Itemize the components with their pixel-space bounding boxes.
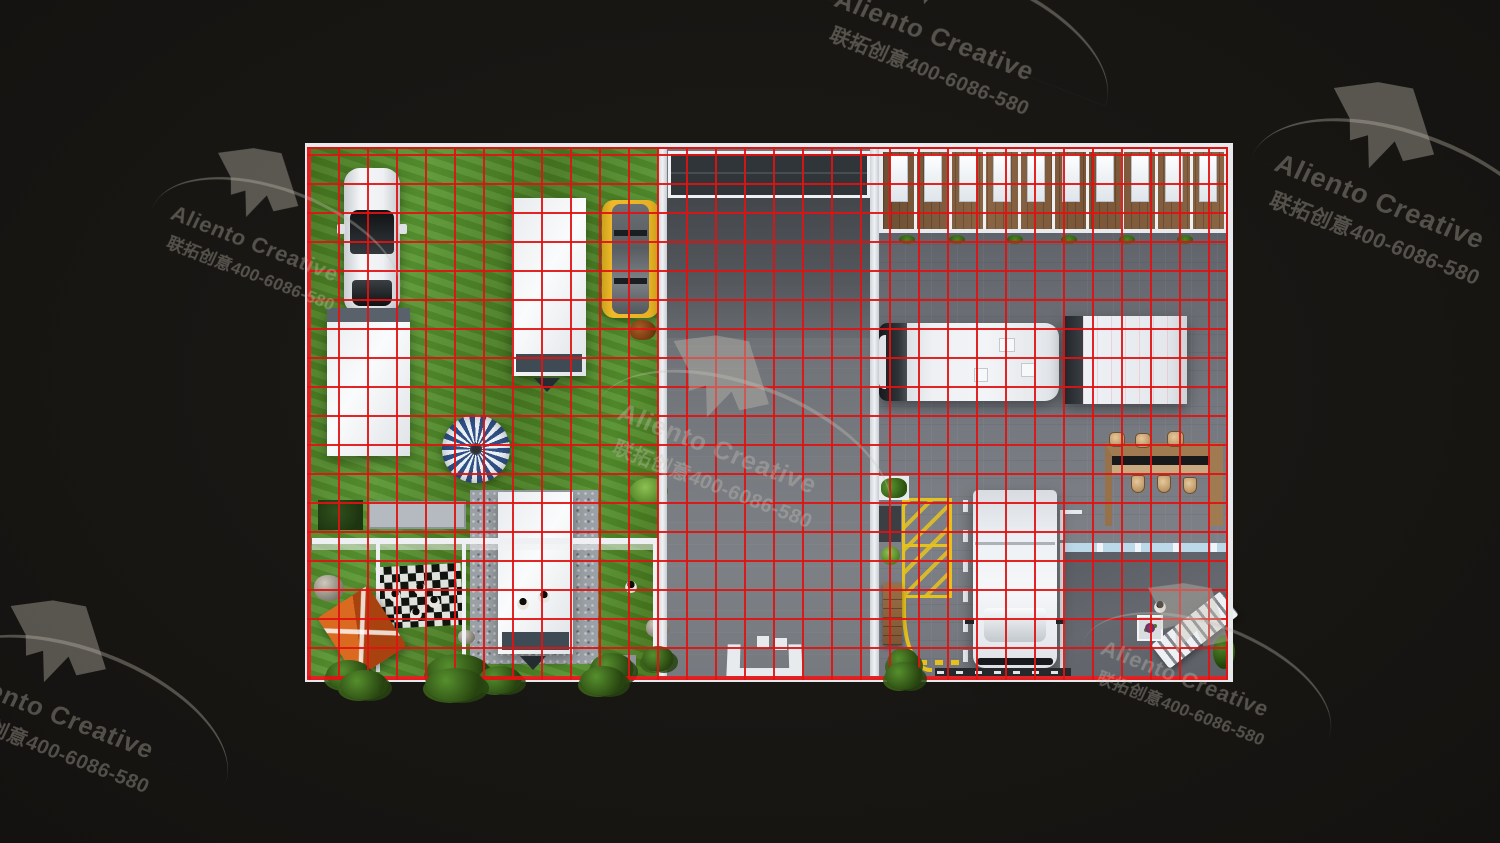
u-shaped-booth (726, 644, 803, 680)
canopy-arrow-icon (534, 378, 560, 392)
person-figure (388, 588, 402, 602)
brand-logo-icon (1306, 55, 1457, 196)
person-figure (516, 596, 530, 610)
car-mirror-icon (337, 224, 345, 234)
stage: Aliento Creative 联拓创意400-6086-580 Alient… (0, 0, 1500, 843)
room-bed (1062, 154, 1080, 202)
plant (1177, 235, 1193, 244)
corner-room (1060, 543, 1228, 677)
canopy-arrow-icon (520, 656, 546, 670)
van-box-seam (975, 542, 1055, 545)
flower-table (1137, 615, 1163, 641)
bar-countertop (1112, 456, 1210, 465)
car-rear-window (352, 280, 392, 306)
dividing-wall (658, 148, 667, 677)
wooden-bench (883, 583, 902, 645)
edge-marker-strip (935, 668, 1071, 678)
garden-section (310, 148, 658, 677)
white-canopy-path (498, 492, 573, 654)
garden-fence (312, 538, 658, 544)
plant (1213, 635, 1235, 669)
swoosh-icon (812, 0, 1133, 106)
bush (580, 666, 626, 696)
dorm-room (1193, 152, 1224, 229)
roof-hatch (974, 368, 988, 382)
yellow-hatched-zone (902, 498, 952, 598)
dark-screen-panel (668, 151, 870, 198)
bush (642, 646, 674, 672)
dividing-wall (870, 148, 879, 677)
room-bed (959, 154, 977, 202)
brand-logo-icon (0, 574, 128, 708)
watermark-brand-text: Aliento Creative (830, 0, 1039, 87)
dorm-room (1124, 152, 1158, 229)
watermark-brand-text: Aliento Creative (1270, 148, 1490, 256)
striped-parasol (442, 415, 510, 483)
plant (1119, 235, 1135, 244)
bar-stool (1157, 475, 1171, 493)
room-bed (924, 154, 942, 202)
bus-bumper (879, 335, 886, 389)
car-windshield (350, 210, 394, 254)
dorm-room (1021, 152, 1055, 229)
dark-paving-pad (879, 506, 901, 542)
booth-tab (757, 636, 769, 648)
dorm-rooms-strip (879, 148, 1228, 233)
room-bed (890, 154, 908, 202)
room-bed (1199, 154, 1217, 202)
dorm-rooms-row (883, 152, 1224, 229)
fence-divider (462, 544, 466, 672)
yellow-sports-car (602, 200, 659, 318)
dorm-room (952, 152, 986, 229)
brand-logo-icon (864, 0, 1007, 31)
car-rear-window (614, 278, 647, 284)
person-figure (409, 606, 423, 620)
dorm-room (1089, 152, 1123, 229)
watermark-phone-text: 联拓创意400-6086-580 (1265, 185, 1486, 292)
parking-corner-marking (1060, 510, 1082, 540)
site-plan-render (305, 143, 1233, 682)
bush (425, 668, 485, 702)
watermark-bottom-left: Aliento Creative 联拓创意400-6086-580 (0, 567, 254, 843)
yellow-dashed-marking (919, 660, 961, 665)
rock (314, 575, 344, 601)
bar-stool (1167, 431, 1184, 447)
dorm-room (1158, 152, 1192, 229)
car-roof (612, 204, 649, 314)
bar-stool (1183, 477, 1197, 494)
person-figure (413, 581, 427, 595)
roof-hatch (1021, 363, 1035, 377)
gray-planter (368, 501, 466, 529)
roof-hatch (999, 338, 1015, 352)
plant (1007, 235, 1023, 244)
white-canopy-left (327, 308, 410, 456)
bush (340, 670, 388, 700)
room-bed (1131, 154, 1149, 202)
person-figure (537, 589, 551, 603)
yard-wall-shadow (667, 198, 870, 338)
swoosh-icon (0, 597, 254, 784)
plant (1061, 235, 1077, 244)
person-figure (624, 579, 638, 593)
watermark-phone-text: 联拓创意400-6086-580 (825, 20, 1035, 122)
person-figure (427, 594, 441, 608)
dorm-room (1055, 152, 1089, 229)
plant (949, 235, 965, 244)
brand-logo-icon (196, 126, 317, 239)
white-canopy-center (512, 198, 586, 376)
bar-stool (1109, 432, 1125, 447)
swoosh-icon (1252, 79, 1500, 276)
canopy-dark-panel (502, 632, 569, 650)
person-figure (1153, 599, 1167, 613)
booth-tab (775, 638, 787, 650)
dorm-room (917, 152, 951, 229)
truck-box (1083, 316, 1187, 404)
white-van (973, 490, 1057, 668)
room-bed (1165, 154, 1183, 202)
van-mirror-icon (965, 618, 974, 624)
car-windshield (614, 230, 647, 236)
watermark-phone-text: 联拓创意400-6086-580 (0, 698, 155, 800)
yard-section (667, 148, 870, 677)
watermark-brand-text: Aliento Creative (0, 663, 159, 765)
yard-floor (667, 338, 870, 677)
bar-stool (1131, 475, 1145, 493)
planter-with-shrubs (879, 476, 909, 500)
hedge-box (318, 500, 363, 530)
car-mirror-icon (399, 224, 407, 234)
truck-cab (1063, 316, 1083, 404)
white-bus (879, 323, 1059, 401)
white-car (344, 168, 400, 313)
van-mirror-icon (1056, 618, 1065, 624)
canopy-dark-panel (516, 354, 582, 372)
blue-glass-partition (1065, 543, 1228, 552)
building-section (879, 148, 1228, 677)
room-bed (993, 154, 1011, 202)
canopy-dark-trim (327, 308, 410, 322)
bush (885, 662, 923, 690)
van-windshield (984, 608, 1046, 642)
plant (899, 235, 915, 244)
room-bed (1027, 154, 1045, 202)
dog-figure (630, 320, 656, 340)
white-box-truck (1063, 316, 1187, 404)
bar-stool (1135, 433, 1151, 448)
watermark-top-right: Aliento Creative 联拓创意400-6086-580 (1238, 47, 1500, 341)
bush (478, 666, 522, 694)
dorm-room (883, 152, 917, 229)
rock (458, 630, 475, 644)
potted-plant (881, 546, 900, 565)
white-dashed-lane-line (963, 500, 968, 662)
van-bumper (977, 658, 1053, 665)
room-bed (1096, 154, 1114, 202)
dorm-room (986, 152, 1020, 229)
